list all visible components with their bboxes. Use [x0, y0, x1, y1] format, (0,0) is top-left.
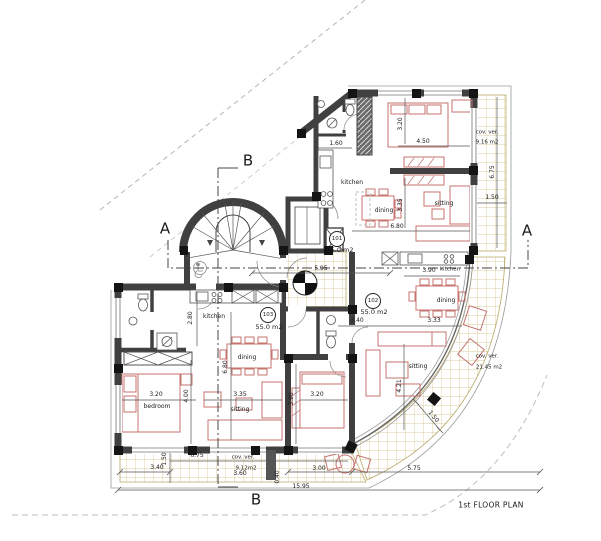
dim-bottom-675: 6.75 [190, 453, 203, 459]
level-marker-symbol [293, 271, 317, 295]
section-marker-a-left: A [160, 222, 170, 237]
dim-101-dining-height: 3.35 [398, 198, 404, 211]
floor-plan-drawing [0, 0, 601, 541]
apt-103-veranda-label: cov. ver. [232, 455, 255, 461]
plan-title: 1st FLOOR PLAN [458, 501, 523, 509]
dim-102-kitchen-width: 3.90 [422, 268, 435, 274]
section-marker-b-top: B [243, 154, 253, 169]
apt-101-veranda-area: 9.16 m2 [476, 140, 499, 146]
apt-103-area: 55.0 m2 [255, 324, 282, 331]
apt-101-kitchen-label: kitchen [341, 180, 363, 186]
dim-bottom-total: 15.95 [292, 484, 309, 490]
apt-102-veranda-area: 21.45 m2 [476, 365, 502, 371]
dim-bottom-040: 0.40 [275, 470, 281, 483]
apt-102-veranda-label: cov. ver. [476, 354, 499, 360]
dim-101-bed-length: 4.50 [416, 139, 429, 145]
apt-102-sitting-label: sitting [409, 364, 428, 370]
dim-103-sitting-width: 3.35 [233, 392, 246, 398]
dim-101-bed-width: 3.20 [398, 117, 404, 130]
apt-101-area: 55.0 m2 [326, 247, 353, 254]
dim-bottom-360: 3.60 [233, 471, 246, 477]
dim-103-bath-height: 2.80 [188, 311, 194, 324]
dim-101-veranda-width: 1.50 [485, 195, 498, 201]
dim-102-hall-width: 3.40 [350, 318, 363, 324]
apt-101-number: 101 [329, 231, 345, 247]
dim-lobby-width: 5.95 [314, 266, 327, 272]
dim-101-living-width: 6.80 [390, 224, 403, 230]
apt-101-dining-label: dining [375, 208, 394, 214]
apt-102-area: 55.0 m2 [360, 309, 387, 316]
apt-102-dining-label: dining [437, 298, 456, 304]
wheelchair-icon [194, 262, 207, 278]
apt-101-veranda-label: cov. ver. [476, 130, 499, 136]
apt-101-sitting-label: sitting [435, 201, 454, 207]
dim-101-bath-width: 1.60 [329, 141, 342, 147]
apt-103-kitchen-label: kitchen [203, 314, 225, 320]
floor-plan-canvas: A A B B 1st FLOOR PLAN 101 55.0 m2 kitch… [0, 0, 601, 541]
dim-102-bed-width: 3.20 [310, 392, 323, 398]
dim-103-bed-height: 4.00 [184, 389, 190, 402]
apt-103-bedroom-label: bedroom [144, 404, 171, 410]
dim-bottom-340: 3.40 [150, 465, 163, 471]
dim-bottom-575: 5.75 [407, 466, 420, 472]
dim-103-bed-width: 3.20 [149, 392, 162, 398]
apt-103-sitting-label: sitting [231, 407, 250, 413]
dim-bottom-300: 3.00 [312, 466, 325, 472]
dim-102-bed-height: 3.90 [289, 392, 295, 405]
dim-101-veranda-height: 6.75 [490, 165, 496, 178]
section-marker-a-right: A [522, 224, 532, 239]
dim-103-living-height: 6.80 [223, 360, 229, 373]
section-marker-b-bottom: B [251, 493, 261, 508]
apt-103-number: 103 [260, 307, 276, 323]
dim-102-dining-width: 3.33 [427, 318, 440, 324]
apt-102-kitchen-label: kitchen [440, 267, 460, 273]
dim-bottom-150: 1.50 [162, 452, 168, 465]
apt-102-number: 102 [365, 293, 381, 309]
apt-103-dining-label: dining [238, 355, 257, 361]
dim-102-sitting-height: 4.21 [397, 379, 403, 392]
